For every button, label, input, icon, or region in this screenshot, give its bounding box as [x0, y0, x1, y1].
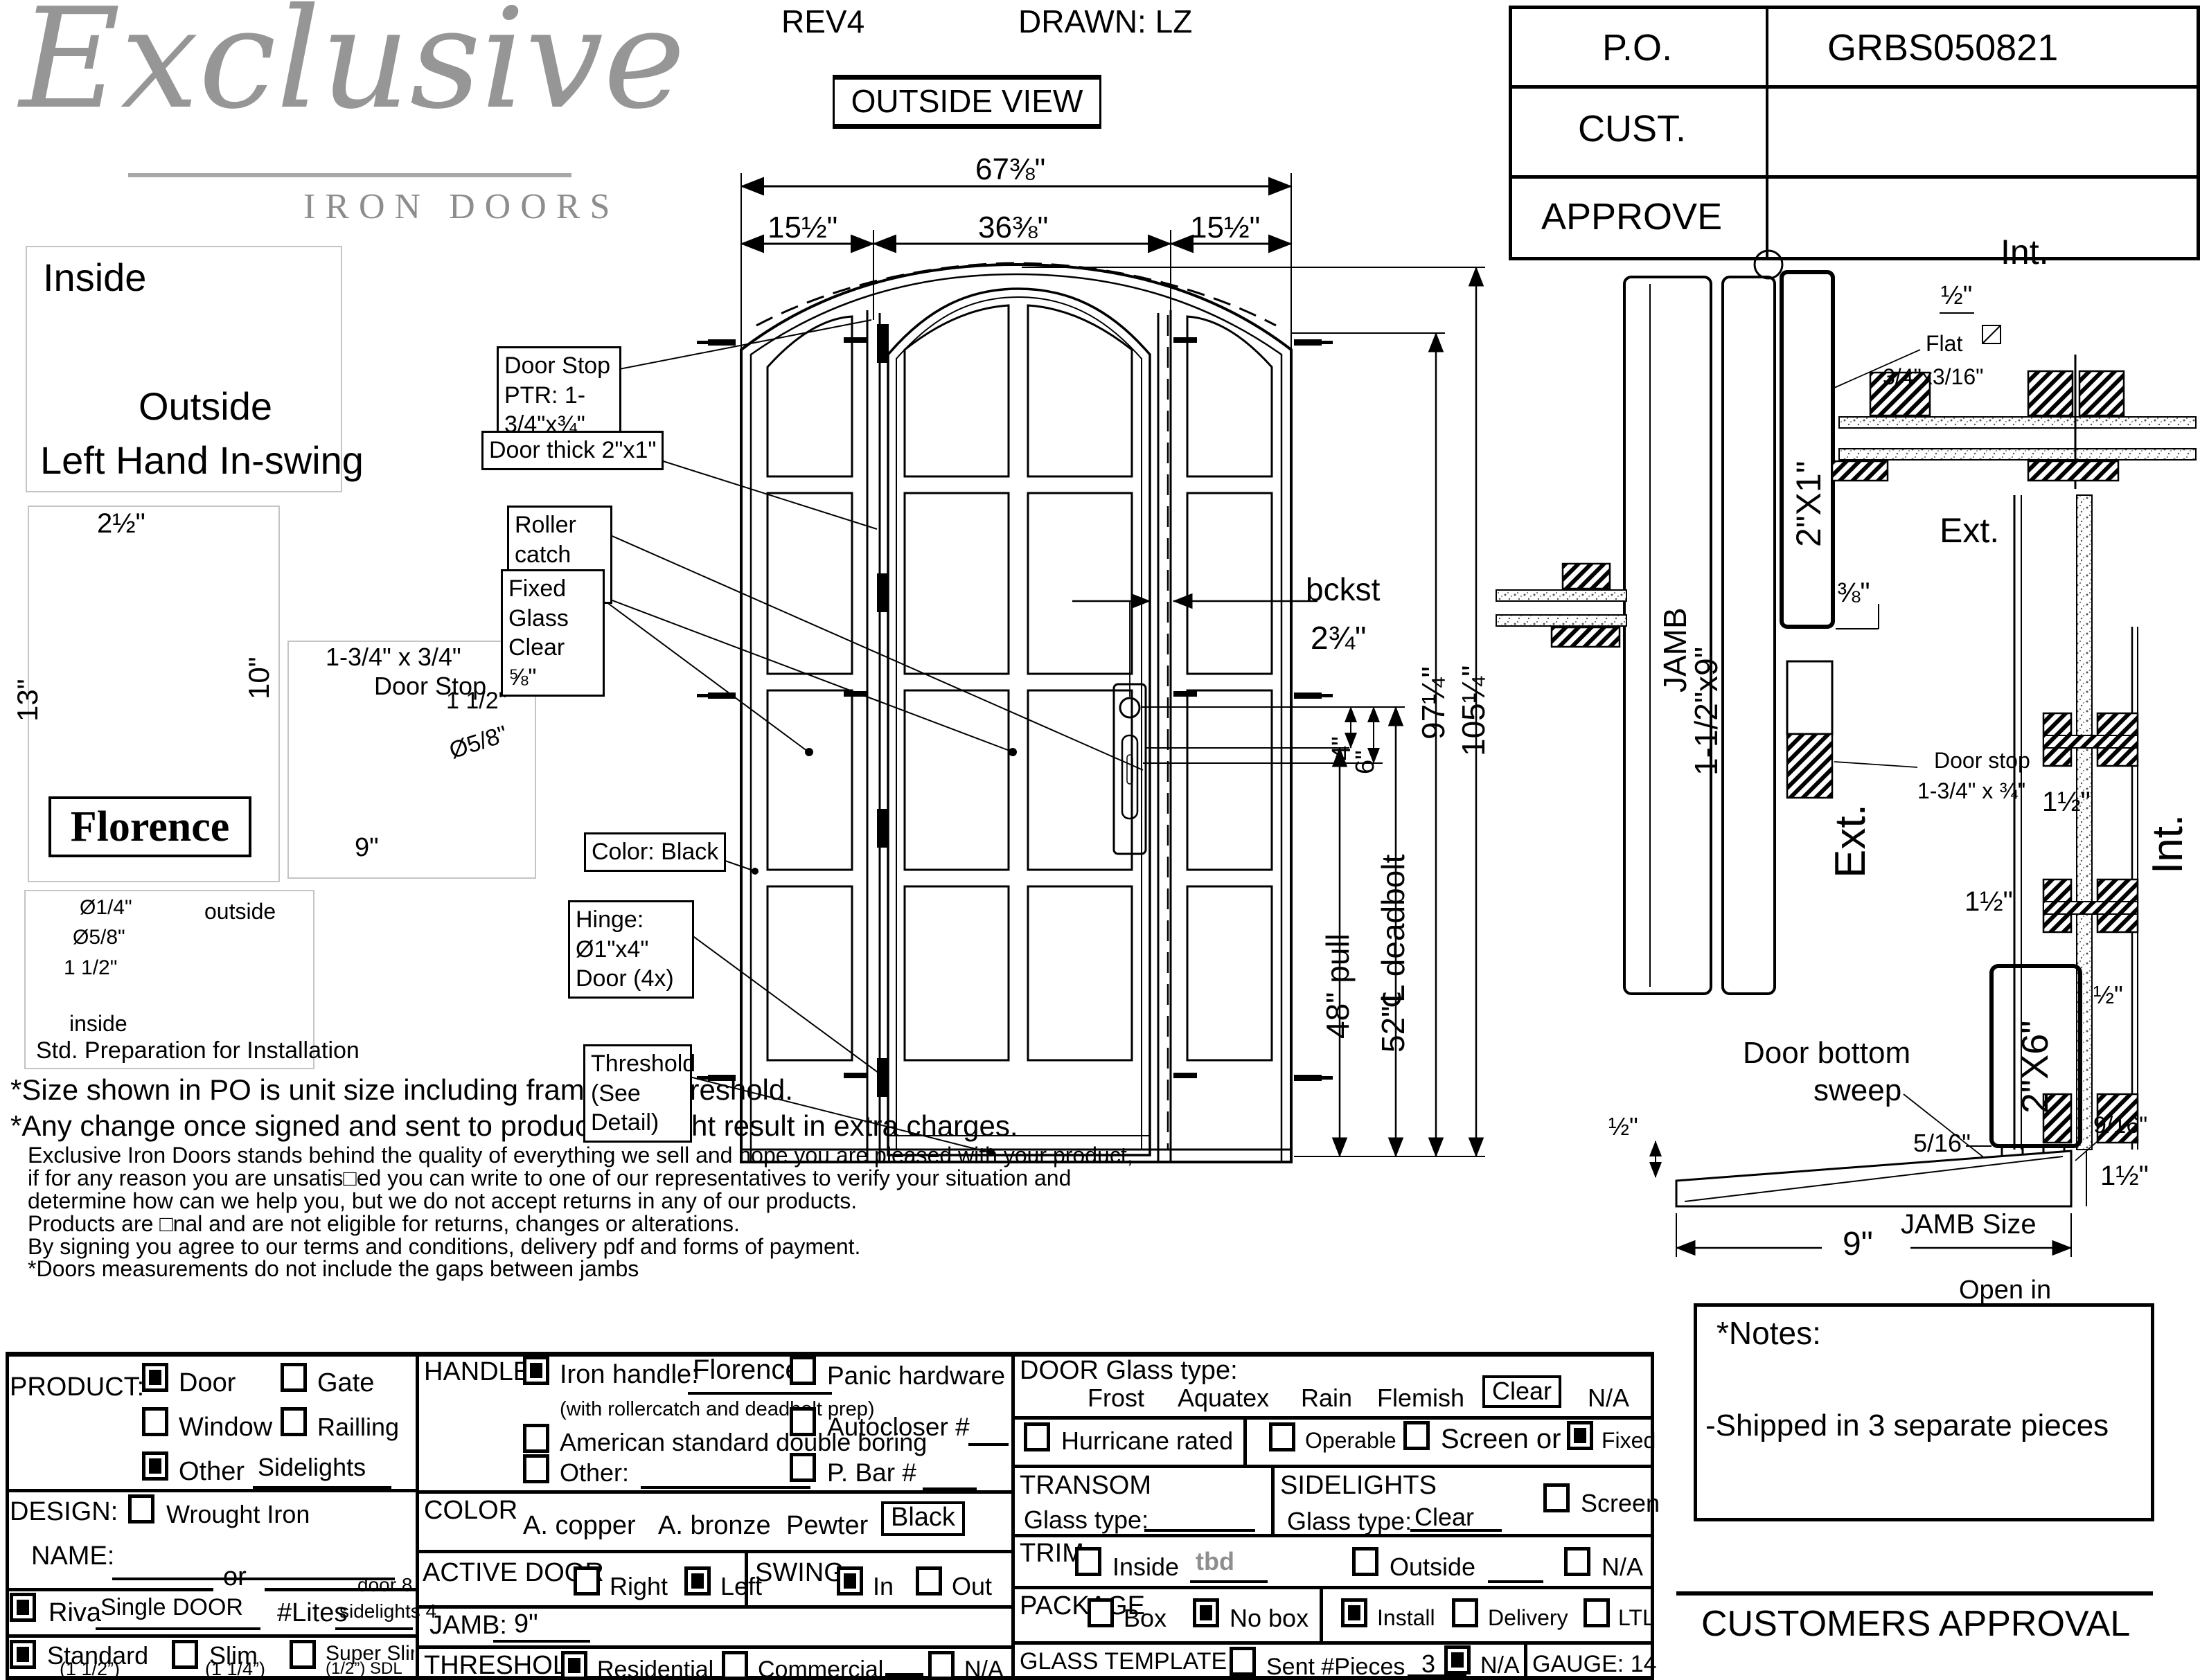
- head-jamb-label: JAMB: [1659, 607, 1692, 692]
- gauge-label: GAUGE: 14: [1532, 1652, 1657, 1677]
- design-wrought-label: Wrought Iron: [166, 1501, 310, 1527]
- design-label: DESIGN:: [10, 1499, 118, 1526]
- vsec-nine: 9": [1843, 1227, 1873, 1262]
- delivery-label: Delivery: [1488, 1607, 1568, 1629]
- color-pewter[interactable]: Pewter: [786, 1512, 868, 1540]
- logo-subtitle: IRON DOORS: [303, 188, 619, 226]
- dim-right: 15½": [1190, 212, 1260, 244]
- vsec-half: ½": [2093, 982, 2123, 1008]
- cust-label: CUST.: [1578, 109, 1686, 148]
- glass-clear-selected[interactable]: Clear: [1482, 1375, 1561, 1408]
- name-label: NAME:: [31, 1543, 114, 1571]
- glass-flemish[interactable]: Flemish: [1377, 1385, 1464, 1411]
- threshold-residential-checkbox[interactable]: [561, 1651, 587, 1680]
- head-int-label: Int.: [2001, 234, 2048, 270]
- disclaimer-p5: By signing you agree to our terms and co…: [28, 1235, 860, 1258]
- drawn-label: DRAWN: LZ: [1018, 6, 1192, 39]
- doorstop-l1: 1-3/4" x 3/4": [326, 644, 461, 670]
- swing-in-checkbox[interactable]: [837, 1566, 863, 1596]
- product-other-checkbox[interactable]: [142, 1451, 168, 1481]
- prep-d1: Ø1/4": [80, 897, 132, 918]
- transom-label: TRANSOM: [1020, 1472, 1151, 1500]
- threshold-na-label: N/A: [964, 1658, 1004, 1680]
- glass-na-label: N/A: [1480, 1654, 1520, 1678]
- dim-105: 105¼": [1457, 665, 1491, 756]
- vsec-jambsize: JAMB Size: [1901, 1210, 2037, 1240]
- glass-frost[interactable]: Frost: [1088, 1385, 1144, 1411]
- slim-checkbox[interactable]: [172, 1640, 198, 1669]
- glass-type-label: DOOR Glass type:: [1020, 1357, 1238, 1385]
- product-door-label: Door: [179, 1370, 236, 1397]
- swing-caption: Left Hand In-swing: [40, 440, 364, 481]
- package-box-label: Box: [1124, 1605, 1166, 1631]
- head-flat2: 3/4"x3/16": [1883, 366, 1983, 388]
- disclaimer-p3: determine how can we help you, but we do…: [28, 1190, 857, 1213]
- product-window-checkbox[interactable]: [142, 1407, 168, 1436]
- vsec-openin: Open in: [1959, 1277, 2051, 1305]
- handle-other-checkbox[interactable]: [523, 1454, 549, 1483]
- swing-label: SWING: [755, 1560, 844, 1587]
- active-right-label: Right: [610, 1573, 668, 1599]
- florence-name: Florence: [48, 796, 251, 857]
- approval-line[interactable]: [1676, 1591, 2153, 1596]
- prep-outside: outside: [204, 900, 276, 923]
- fixed-checkbox[interactable]: [1567, 1421, 1593, 1450]
- jamb-value[interactable]: 9": [514, 1611, 538, 1638]
- swing-out-label: Out: [952, 1573, 992, 1599]
- notes-line1[interactable]: -Shipped in 3 separate pieces: [1705, 1410, 2109, 1442]
- dim-six: 6": [1352, 750, 1380, 774]
- superslim-checkbox[interactable]: [290, 1640, 316, 1669]
- disclaimer-p2: if for any reason you are unsatis□ed you…: [28, 1167, 1071, 1190]
- package-nobox-label: No box: [1230, 1605, 1309, 1631]
- product-railing-label: Railling: [317, 1414, 399, 1440]
- swing-outside: Outside: [139, 386, 272, 427]
- dim-left: 15½": [768, 212, 837, 244]
- lites-top-value[interactable]: door 8: [357, 1575, 412, 1595]
- name-underline[interactable]: [112, 1578, 395, 1580]
- sidelights-glass-value[interactable]: Clear: [1414, 1504, 1474, 1530]
- anchor-pins: [697, 337, 1333, 1081]
- riva-label: Riva: [48, 1600, 101, 1627]
- callout-color: Color: Black: [584, 832, 726, 872]
- riva-checkbox[interactable]: [10, 1593, 36, 1622]
- package-nobox-checkbox[interactable]: [1193, 1598, 1219, 1627]
- prep-caption: Std. Preparation for Installation: [36, 1039, 360, 1063]
- disclaimer-p6: *Doors measurements do not include the g…: [28, 1258, 639, 1280]
- handle-other-label: Other:: [560, 1460, 629, 1485]
- autocloser-label: Autocloser #: [827, 1414, 970, 1440]
- approval-label: CUSTOMERS APPROVAL: [1701, 1605, 2130, 1643]
- dim-pull: 48" pull: [1322, 933, 1355, 1039]
- disclaimer-p1: Exclusive Iron Doors stands behind the q…: [28, 1144, 1133, 1167]
- swing-in-label: In: [873, 1573, 894, 1599]
- product-window-label: Window: [179, 1414, 272, 1442]
- product-gate-label: Gate: [317, 1370, 374, 1397]
- drawing-sheet: Exclusive IRON DOORS REV4 DRAWN: LZ OUTS…: [0, 0, 2200, 1680]
- autocloser-checkbox[interactable]: [790, 1407, 816, 1436]
- glass-sent-checkbox[interactable]: [1230, 1647, 1256, 1676]
- install-label: Install: [1377, 1607, 1435, 1629]
- hurricane-label: Hurricane rated: [1061, 1428, 1233, 1454]
- color-bronze[interactable]: A. bronze: [658, 1512, 771, 1540]
- vsec-sweep1: Door bottom: [1743, 1037, 1910, 1069]
- glass-pieces-value[interactable]: 3: [1421, 1651, 1435, 1677]
- delivery-checkbox[interactable]: [1452, 1598, 1478, 1627]
- product-label: PRODUCT:: [10, 1374, 144, 1402]
- po-table: P.O. GRBS050821 CUST. APPROVE: [1509, 6, 2200, 260]
- screen-or-label: Screen or: [1441, 1425, 1561, 1454]
- vsec-half2: ½": [1608, 1114, 1638, 1139]
- dim-97: 97¼": [1417, 666, 1451, 740]
- sidelights-label: SIDELIGHTS: [1280, 1472, 1437, 1500]
- operable-checkbox[interactable]: [1269, 1422, 1295, 1451]
- slim-sub: (1 1/4”): [205, 1659, 265, 1679]
- florence-width-dim: 2½": [97, 510, 145, 539]
- threshold-commercial-checkbox[interactable]: [722, 1651, 748, 1680]
- dim-deadbolt: 52"℄ deadbolt: [1377, 855, 1410, 1053]
- po-label: P.O.: [1602, 28, 1672, 67]
- sidelights-screen-label: Screen: [1581, 1490, 1660, 1516]
- dim-bckst-v: 2¾": [1311, 622, 1366, 655]
- panic-checkbox[interactable]: [790, 1356, 816, 1385]
- doorstop-d1: 1 1/2": [446, 689, 507, 713]
- vsec-ext-label: Ext.: [1829, 804, 1873, 878]
- color-copper[interactable]: A. copper: [523, 1512, 636, 1540]
- glass-template-label: GLASS TEMPLATE: [1020, 1650, 1227, 1674]
- trim-na-checkbox[interactable]: [1564, 1547, 1590, 1576]
- handle-iron-underline[interactable]: [688, 1392, 832, 1395]
- florence-height-dim: 13": [12, 679, 43, 722]
- install-checkbox[interactable]: [1341, 1598, 1367, 1627]
- product-other-underline[interactable]: [253, 1486, 391, 1489]
- head-jamb-size: 1-1/2"x9": [1690, 647, 1723, 776]
- or-label: or: [223, 1564, 247, 1591]
- design-wrought-checkbox[interactable]: [128, 1494, 154, 1523]
- glass-na-checkbox[interactable]: [1444, 1645, 1471, 1674]
- view-title: OUTSIDE VIEW: [833, 75, 1101, 129]
- threshold-commercial-underline[interactable]: [885, 1673, 923, 1676]
- florence-bar-dim: 10": [244, 656, 274, 699]
- riva-underline[interactable]: [96, 1627, 260, 1630]
- vsec-sweep2: sweep: [1813, 1075, 1901, 1107]
- callout-doorstop: Door StopPTR: 1-3/4"x¾": [497, 346, 621, 445]
- po-value[interactable]: GRBS050821: [1827, 28, 2058, 67]
- logo-underline: [128, 173, 571, 177]
- dim-bckst: bckst: [1306, 573, 1380, 607]
- head-ext-label: Ext.: [1940, 512, 1999, 548]
- prep-d2: Ø5/8": [73, 927, 125, 948]
- glass-na[interactable]: N/A: [1588, 1385, 1629, 1411]
- handle-iron-checkbox[interactable]: [523, 1356, 549, 1385]
- product-door-checkbox[interactable]: [142, 1363, 168, 1392]
- handle-american-checkbox[interactable]: [523, 1424, 549, 1453]
- vertical-section: [1656, 495, 2138, 1257]
- trim-outside-checkbox[interactable]: [1352, 1547, 1378, 1576]
- vsec-dim-b: 1½": [1964, 888, 2013, 917]
- package-box-checkbox[interactable]: [1088, 1598, 1114, 1627]
- callout-hinge: Hinge: Ø1"x4"Door (4x): [568, 900, 694, 999]
- product-other-label: Other: [179, 1458, 245, 1486]
- disclaimer-change: *Any change once signed and sent to prod…: [10, 1111, 1018, 1141]
- color-label: COLOR: [424, 1497, 517, 1525]
- callout-fixedglass: Fixed GlassClear ⅝": [501, 569, 605, 697]
- lites-underline[interactable]: [335, 1627, 413, 1630]
- rev-label: REV4: [781, 6, 864, 39]
- sidelights-screen-checkbox[interactable]: [1543, 1483, 1570, 1512]
- handle-label: HANDLE: [424, 1359, 531, 1386]
- glass-rain[interactable]: Rain: [1301, 1385, 1352, 1411]
- sidelights-glass-underline[interactable]: [1410, 1529, 1502, 1532]
- handle-other-underline[interactable]: [641, 1486, 810, 1489]
- trim-inside-label: Inside: [1112, 1554, 1179, 1580]
- jamb-underline[interactable]: [493, 1640, 590, 1643]
- product-other-value[interactable]: Sidelights: [258, 1454, 366, 1480]
- fixed-label: Fixed: [1602, 1429, 1656, 1452]
- vsec-dim-a: 1½": [2042, 788, 2091, 817]
- vsec-916: 9/16": [2093, 1114, 2147, 1138]
- handle-iron-value[interactable]: Florence: [693, 1356, 801, 1385]
- standard-checkbox[interactable]: [10, 1640, 36, 1669]
- standard-sub: (1 1/2”): [60, 1659, 120, 1679]
- head-ds1: Door stop: [1934, 749, 2030, 772]
- doorstop-d3: 9": [355, 834, 379, 862]
- head-ds2: 1-3/4" x ¾": [1917, 780, 2025, 803]
- trim-na-label: N/A: [1602, 1554, 1643, 1580]
- trim-label: TRIM: [1020, 1540, 1084, 1568]
- vsec-dim-c: 1½": [2100, 1162, 2149, 1191]
- vsec-int-label: Int.: [2146, 814, 2190, 874]
- trim-outside-label: Outside: [1390, 1554, 1475, 1580]
- jamb-label: JAMB:: [429, 1612, 507, 1640]
- ltl-label: LTL: [1618, 1607, 1655, 1629]
- prep-d3: 1 1/2": [64, 957, 117, 978]
- product-gate-checkbox[interactable]: [281, 1363, 307, 1392]
- head-flat1: Flat: [1926, 332, 1962, 355]
- pbar-checkbox[interactable]: [790, 1453, 816, 1482]
- transom-glass-label: Glass type:: [1024, 1507, 1148, 1532]
- handle-iron-label: Iron handle:: [560, 1361, 699, 1389]
- riva-value[interactable]: Single DOOR: [100, 1596, 243, 1620]
- trim-inside-underline[interactable]: [1190, 1580, 1268, 1583]
- callout-leaders: [596, 320, 1143, 1156]
- logo-script: Exclusive: [19, 0, 686, 132]
- active-right-checkbox[interactable]: [574, 1566, 600, 1596]
- glass-pieces-underline[interactable]: [1408, 1674, 1466, 1677]
- pbar-label: P. Bar #: [827, 1460, 916, 1486]
- superslim-sub: (1/2”) SDL: [326, 1661, 402, 1678]
- callout-doorthick: Door thick 2"x1": [481, 431, 664, 470]
- head-half-dim: ½": [1941, 283, 1972, 310]
- trim-inside-value[interactable]: tbd: [1196, 1548, 1234, 1574]
- screen-or-checkbox[interactable]: [1403, 1421, 1430, 1450]
- threshold-residential-label: Residential: [597, 1658, 713, 1680]
- trim-outside-underline[interactable]: [1488, 1580, 1543, 1583]
- dim-mid: 36⅜": [978, 212, 1048, 244]
- head-tube-label: 2"X1": [1791, 461, 1827, 547]
- threshold-commercial-label: Commercial: [758, 1658, 883, 1680]
- lites-value[interactable]: sidelights 4: [339, 1601, 436, 1621]
- glass-sent-label: Sent #Pieces: [1266, 1655, 1405, 1679]
- panic-label: Panic hardware: [827, 1363, 1005, 1389]
- vsec-tube: 2"X6": [2016, 1021, 2055, 1114]
- hurricane-checkbox[interactable]: [1024, 1422, 1050, 1451]
- sidelights-glass-label: Glass type:: [1287, 1508, 1412, 1534]
- glass-aquatex[interactable]: Aquatex: [1178, 1385, 1269, 1411]
- dim-total: 67⅜": [975, 154, 1045, 186]
- swing-out-checkbox[interactable]: [916, 1566, 942, 1596]
- swing-inside: Inside: [43, 258, 146, 298]
- active-left-checkbox[interactable]: [684, 1566, 711, 1596]
- prep-inside: inside: [69, 1012, 127, 1035]
- product-railing-checkbox[interactable]: [281, 1407, 307, 1436]
- approve-label: APPROVE: [1541, 197, 1722, 236]
- callout-threshold: Threshold(See Detail): [583, 1044, 692, 1143]
- trim-inside-checkbox[interactable]: [1075, 1547, 1101, 1576]
- disclaimer-p4: Products are □nal and are not eligible f…: [28, 1213, 740, 1235]
- lites-label: #Lites: [277, 1600, 347, 1627]
- operable-label: Operable: [1305, 1429, 1396, 1452]
- vsec-516: 5/16": [1913, 1130, 1971, 1156]
- color-black-selected[interactable]: Black: [881, 1501, 965, 1536]
- threshold-na-checkbox[interactable]: [928, 1651, 955, 1680]
- pbar-underline[interactable]: [923, 1487, 977, 1490]
- notes-title: *Notes:: [1716, 1317, 1821, 1350]
- transom-glass-underline[interactable]: [1144, 1529, 1255, 1532]
- ltl-checkbox[interactable]: [1584, 1598, 1610, 1627]
- head-threeeighths: ⅜": [1837, 579, 1870, 608]
- autocloser-underline[interactable]: [968, 1443, 1009, 1446]
